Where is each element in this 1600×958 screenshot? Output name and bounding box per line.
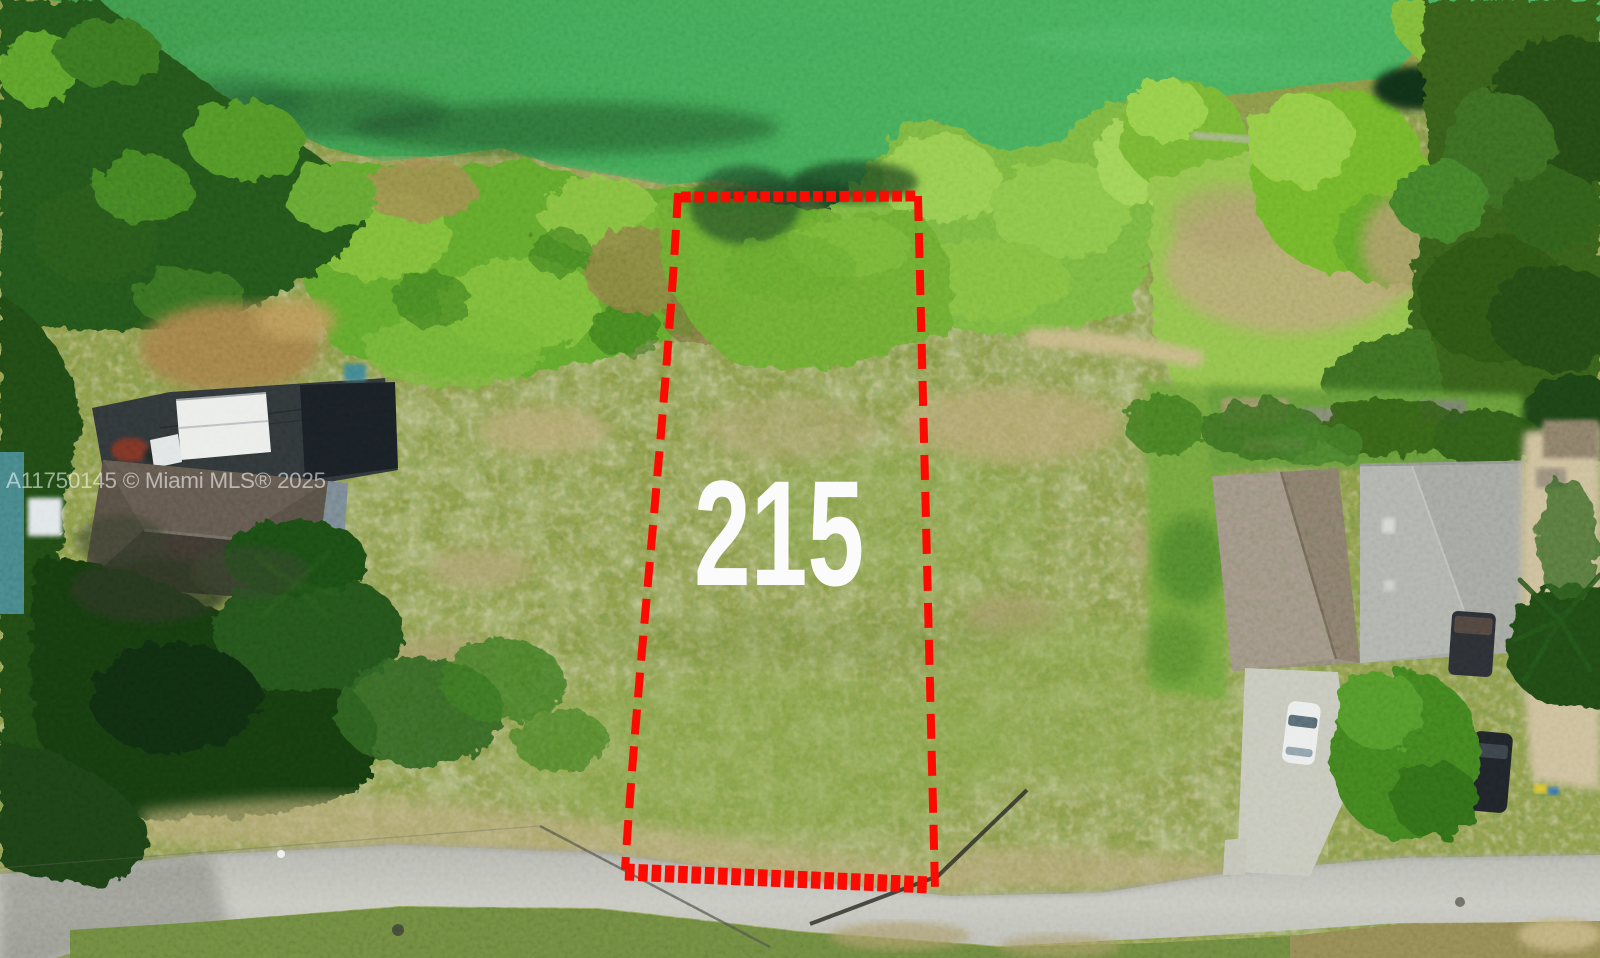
svg-text:A11750145 © Miami MLS® 2025: A11750145 © Miami MLS® 2025 <box>6 468 326 493</box>
svg-text:215: 215 <box>694 451 864 618</box>
